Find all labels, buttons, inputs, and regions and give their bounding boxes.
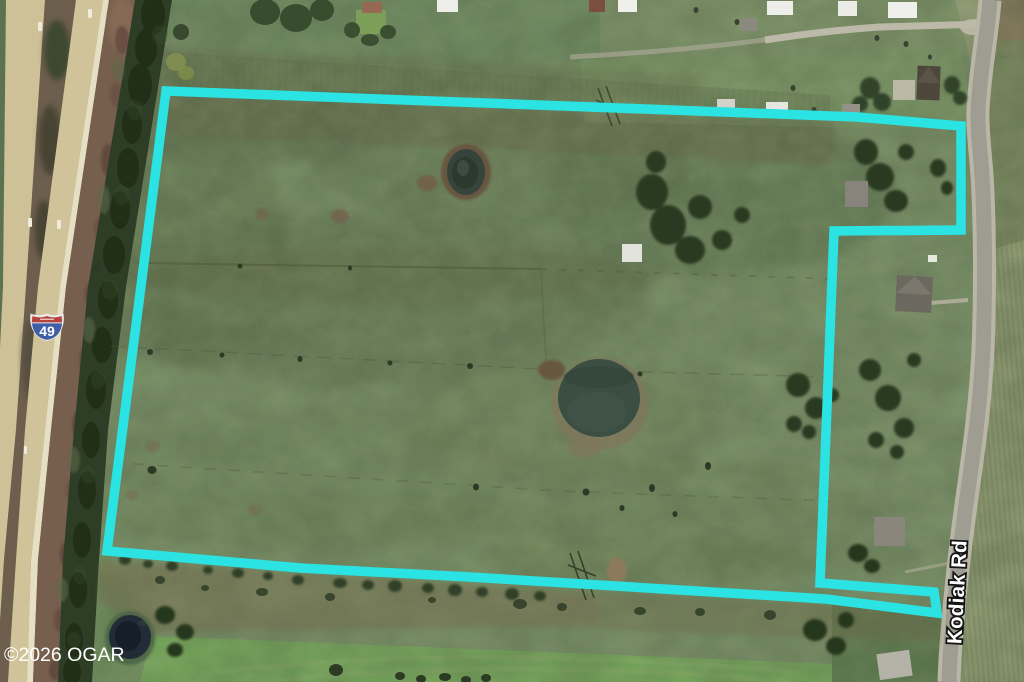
svg-text:©2026 OGAR: ©2026 OGAR	[4, 644, 125, 666]
svg-text:49: 49	[39, 323, 55, 339]
